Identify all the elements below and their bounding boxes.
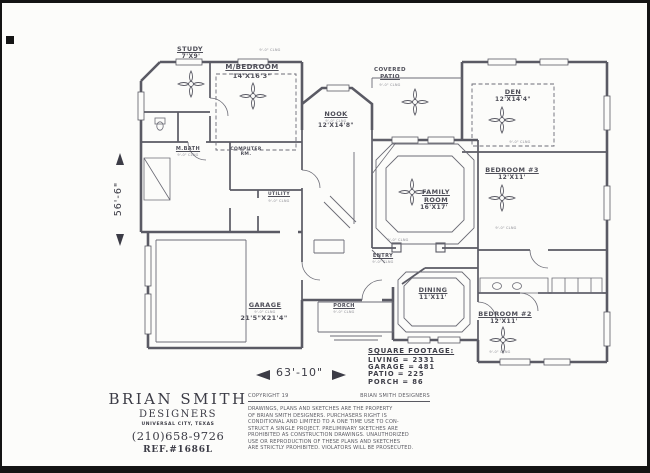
ceiling-fan-icon [489,185,515,211]
study-label: STUDY [177,46,203,53]
square-footage-row: PORCH = 86 [368,379,454,386]
den-label: DEN [505,89,521,96]
patio-ceiling-note: 9'-0" CLNG [379,83,400,87]
den-size: 12'X14'4" [495,97,531,103]
width-dimension: 63'-10" [276,366,323,379]
dim-arrow-down [116,234,124,246]
square-footage-title: SQUARE FOOTAGE: [368,347,454,355]
fixtures [144,118,602,293]
copyright-owner: BRIAN SMITH DESIGNERS [360,393,430,399]
plan-reference-number: REF.#1686L [108,445,248,455]
porch-label: PORCH [333,304,355,309]
door-arcs [188,98,548,320]
master-bath-note: 9'-0" CLNG [177,153,198,157]
family-room-size: 16'X17' [420,205,448,211]
utility-label: UTILITY [268,193,290,198]
ceiling-fan-icon [402,89,428,115]
porch-ceiling-note: 9'-0" CLNG [333,310,354,314]
square-footage-table: SQUARE FOOTAGE: LIVING = 2331 GARAGE = 4… [368,347,454,386]
copyright-label: COPYRIGHT 19 [248,393,289,399]
ceiling-note: 9'-0" CLNG [259,48,280,52]
garage-size: 21'5"X21'4" [240,315,287,322]
master-bedroom-size: 14'X16'3" [233,73,272,80]
floor-plan-sheet: STUDY 7'X9' M/BEDROOM 14'X16'3" NOOK 9'-… [0,0,650,473]
computer-room-label-2: RM. [241,153,252,158]
entry-label: ENTRY [373,254,393,259]
bedroom3-label: BEDROOM #3 [485,167,539,174]
designer-name: BRIAN SMITH [108,390,248,408]
copyright-block: COPYRIGHT 19 BRIAN SMITH DESIGNERS DRAWI… [248,393,430,452]
designer-title-block: BRIAN SMITH DESIGNERS UNIVERSAL CITY, TE… [108,390,248,455]
exterior-walls [141,62,607,362]
ceiling-note: 9'-0" CLNG [489,350,510,354]
interior-walls [141,62,607,340]
copyright-line: ARE STRICTLY PROHIBITED. VIOLATORS WILL … [248,445,430,452]
ceiling-fan-icon [240,83,266,109]
entry-ceiling-note: 9'-0" CLNG [372,260,393,264]
master-bath-label: M.BATH [176,147,200,152]
designer-phone: (210)658-9726 [108,429,248,443]
master-bedroom-label: M/BEDROOM [225,64,278,71]
designer-location: UNIVERSAL CITY, TEXAS [108,422,248,427]
designer-subtitle: DESIGNERS [108,409,248,420]
windows [138,59,610,365]
ceiling-note: 9'-0" CLNG [495,226,516,230]
slab-and-counter-lines [156,78,462,342]
bedroom3-size: 12'X11' [498,175,526,181]
dim-arrow-left [256,370,270,380]
bedroom2-size: 12'X11' [490,319,518,325]
bedroom2-label: BEDROOM #2 [478,311,532,318]
garage-label: GARAGE [249,302,282,309]
nook-label: NOOK [324,111,347,118]
family-room-label-1: FAMILY [422,189,450,196]
nook-size: 12'X14'8" [318,123,354,129]
study-size: 7'X9' [182,54,201,60]
dim-arrow-up [116,153,124,165]
height-dimension: 56'-6" [113,171,127,227]
family-room-label-2: ROOM [424,197,448,204]
dining-size: 11'X11' [419,295,447,301]
copyright-line: PROHIBITED AS CONSTRUCTION DRAWINGS. UNA… [248,432,430,439]
ceiling-note: 9'-0" CLNG [509,140,530,144]
copyright-header: COPYRIGHT 19 BRIAN SMITH DESIGNERS [248,393,430,402]
covered-patio-label-2: PATIO [380,75,400,81]
ceiling-note: 9'-0" CLNG [387,238,408,242]
dim-arrow-right [332,370,346,380]
utility-note: 9'-0" CLNG [268,199,289,203]
dining-label: DINING [419,287,448,294]
ceiling-fan-icon [489,107,515,133]
ceiling-fan-icon [178,71,204,97]
covered-patio-label-1: COVERED [374,68,406,74]
